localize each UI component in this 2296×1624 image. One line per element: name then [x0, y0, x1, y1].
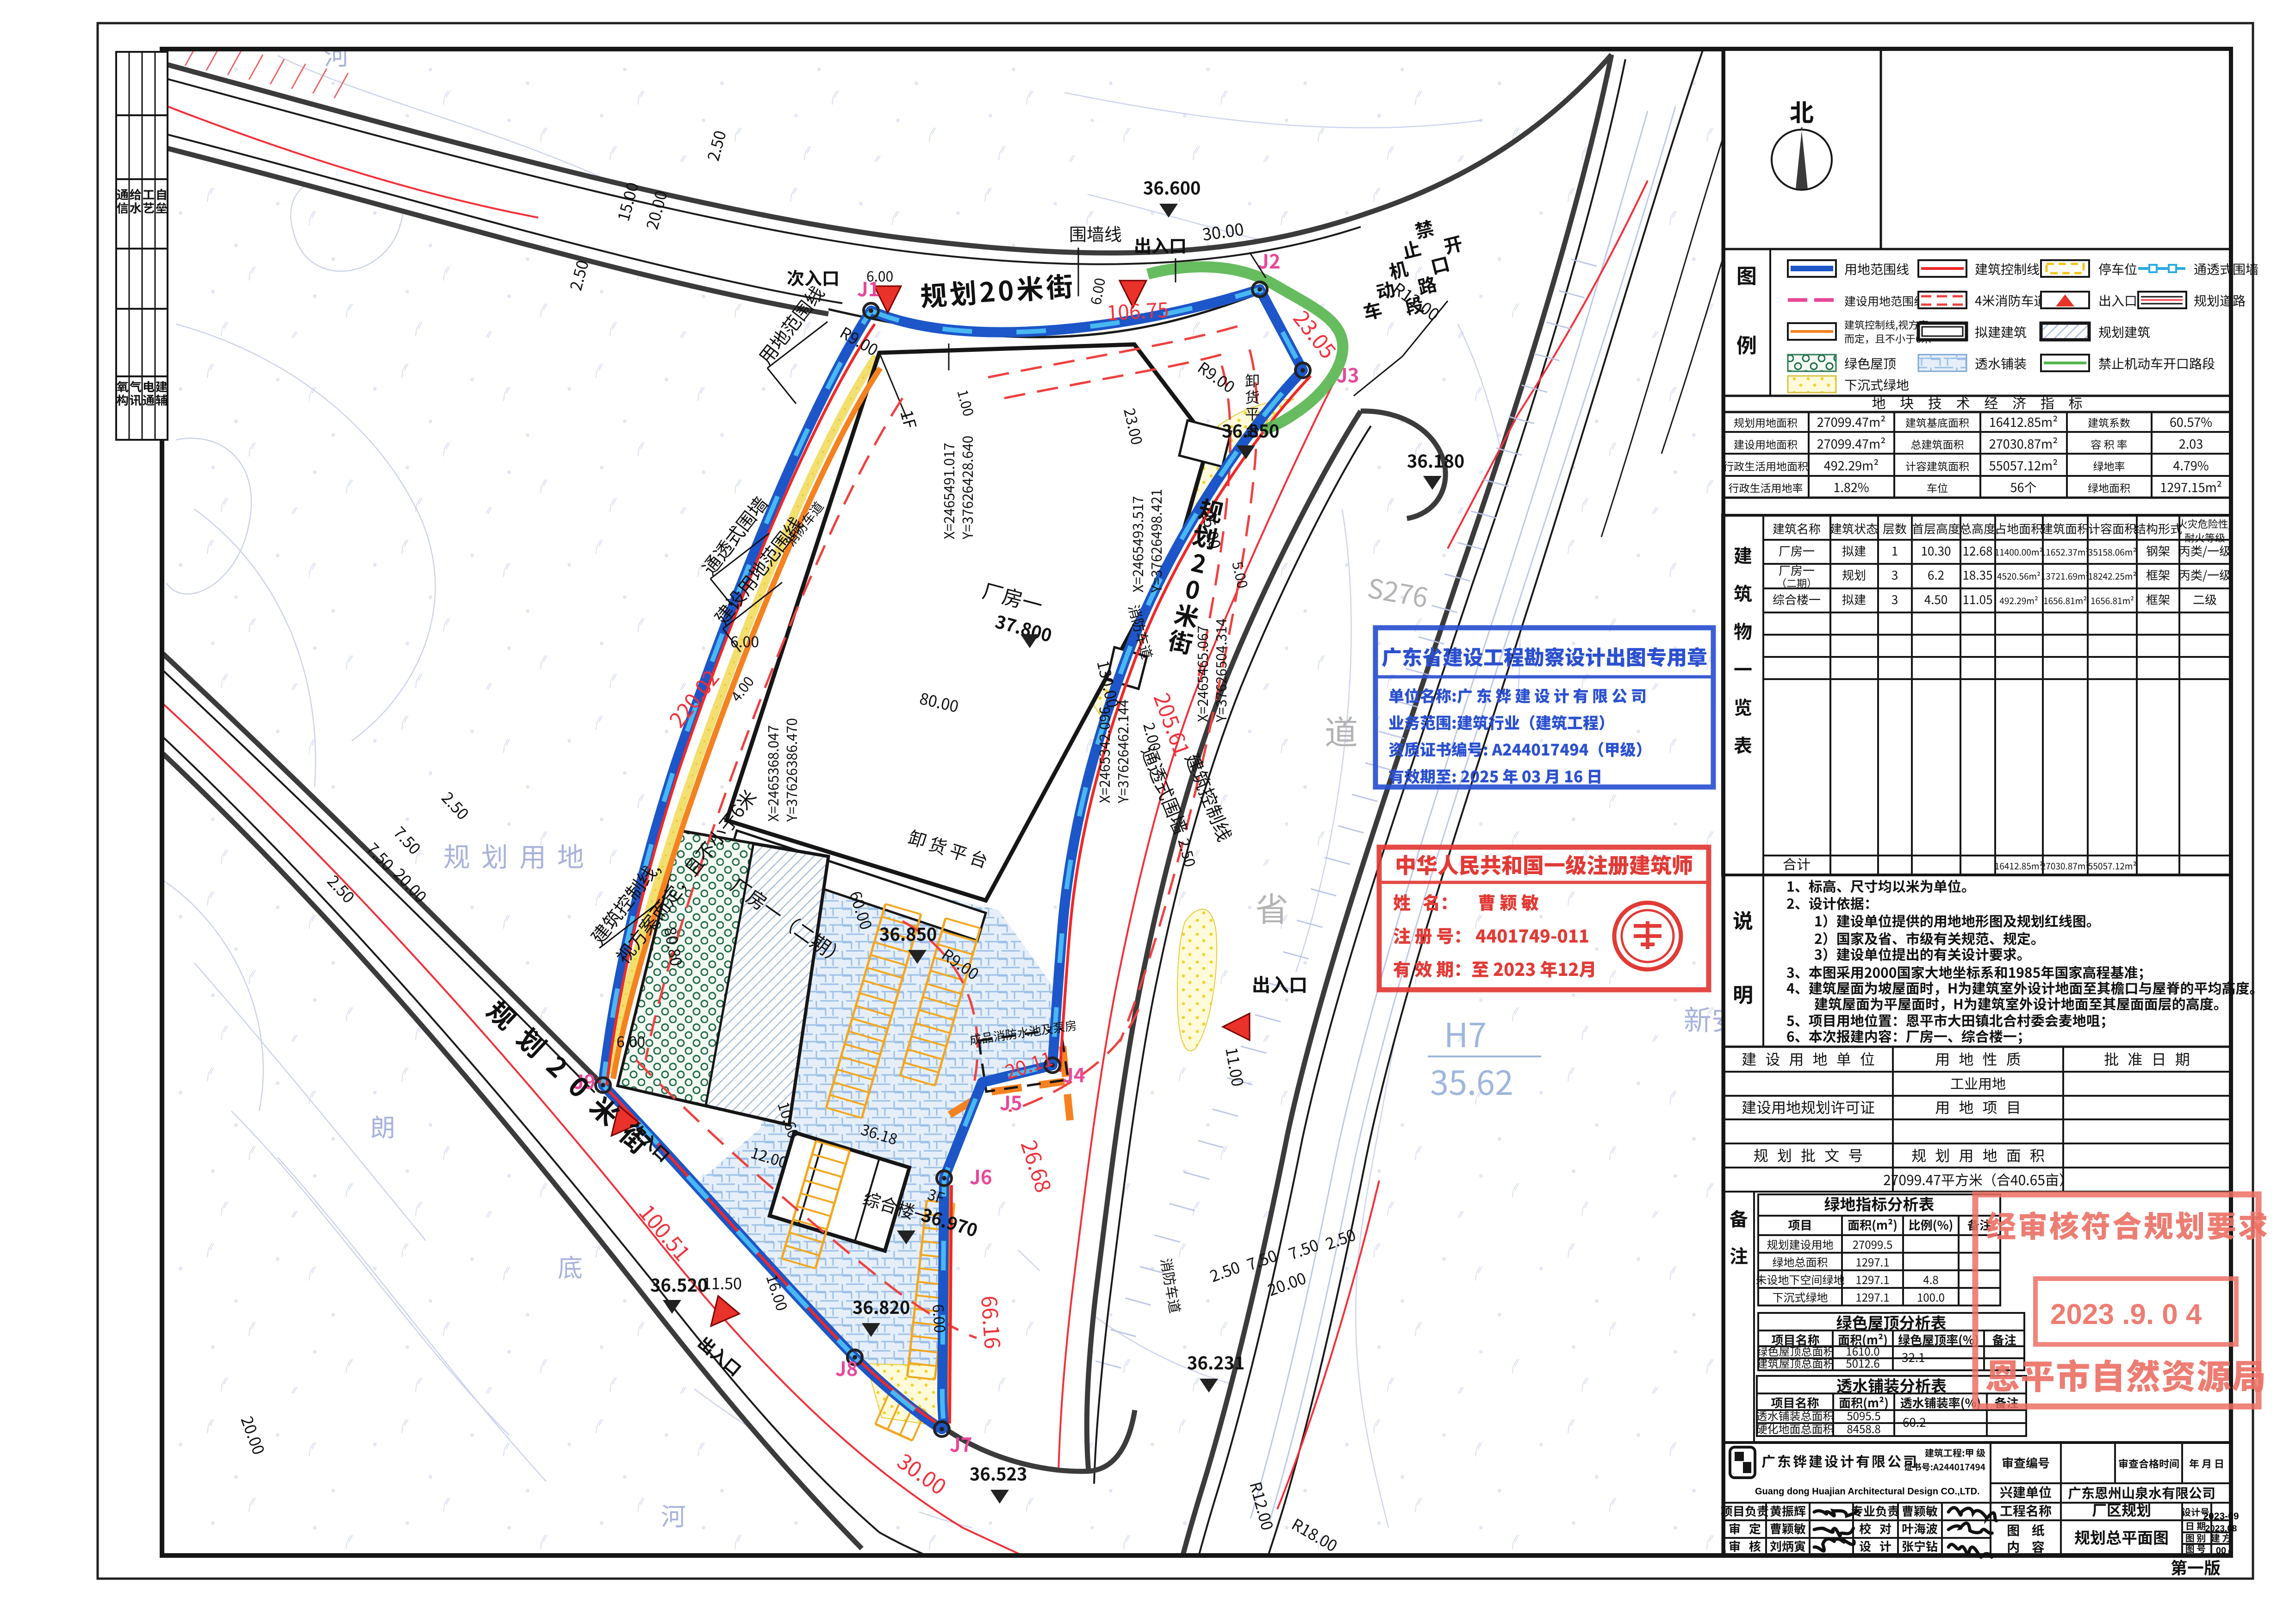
svg-text:Guang dong Huajian Architectur: Guang dong Huajian Architectural Design … [1755, 1487, 1980, 1497]
svg-text:2023.08: 2023.08 [2205, 1524, 2237, 1534]
svg-text:2023-09: 2023-09 [2203, 1511, 2239, 1522]
svg-text:00: 00 [2216, 1546, 2226, 1556]
svg-text:2023 .9. 0 4: 2023 .9. 0 4 [2050, 1299, 2202, 1330]
